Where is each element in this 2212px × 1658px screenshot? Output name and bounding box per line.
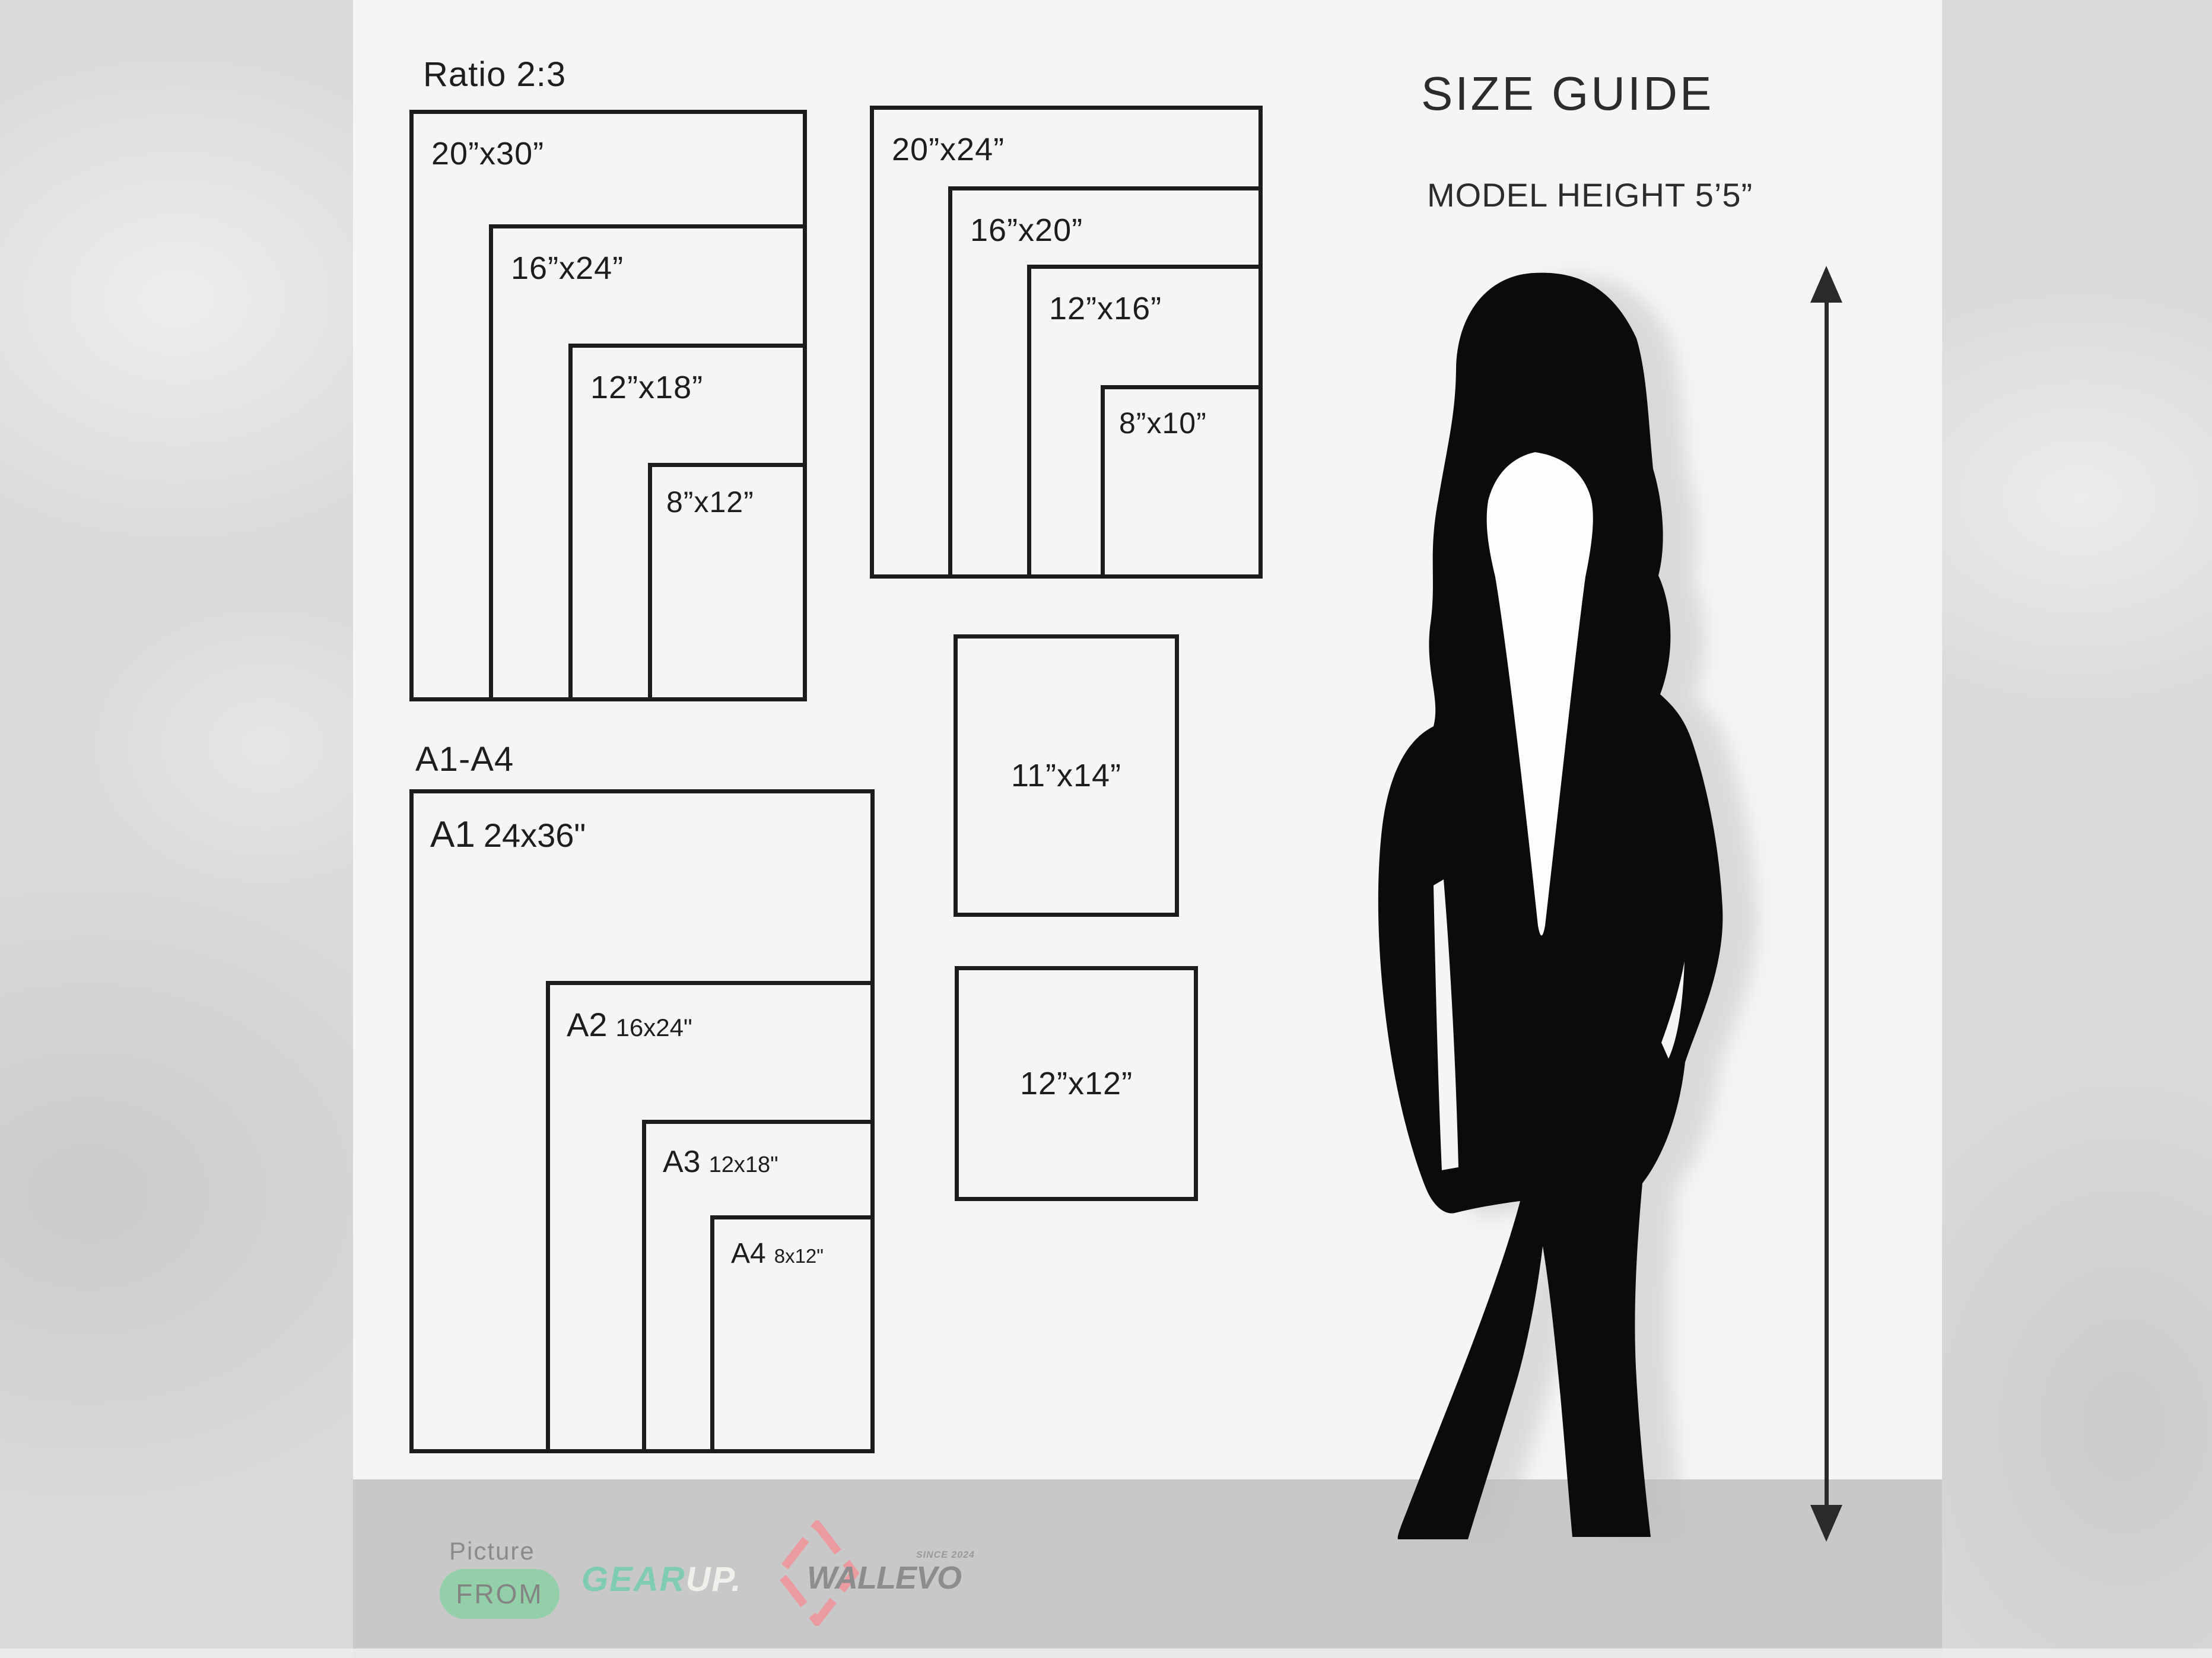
size-label-a1: A1 24x36" bbox=[430, 814, 586, 856]
picture-from-label: Picture bbox=[449, 1537, 535, 1565]
size-label-20x30: 20”x30” bbox=[431, 135, 544, 172]
size-label-a4: A4 8x12" bbox=[731, 1237, 824, 1270]
size-box-8x12: 8”x12” bbox=[648, 463, 807, 701]
model-height-label: MODEL HEIGHT 5’5” bbox=[1427, 176, 1753, 214]
size-label-8x12: 8”x12” bbox=[666, 485, 754, 519]
size-label-12x16: 12”x16” bbox=[1049, 290, 1162, 327]
a1-size: 24x36" bbox=[484, 816, 586, 855]
a4-size: 8x12" bbox=[774, 1245, 824, 1268]
size-label-16x20: 16”x20” bbox=[970, 212, 1083, 249]
woman-silhouette-icon bbox=[1329, 268, 1744, 1538]
size-label-20x24: 20”x24” bbox=[892, 131, 1005, 168]
size-label-11x14: 11”x14” bbox=[1011, 757, 1121, 794]
size-label-a3: A3 12x18" bbox=[663, 1144, 778, 1180]
a3-name: A3 bbox=[663, 1144, 701, 1180]
a2-name: A2 bbox=[567, 1005, 608, 1044]
size-box-8x10: 8”x10” bbox=[1101, 385, 1263, 579]
page-title: SIZE GUIDE bbox=[1421, 66, 1714, 121]
size-label-12x12: 12”x12” bbox=[1020, 1065, 1133, 1102]
size-label-12x18: 12”x18” bbox=[590, 369, 703, 406]
gearup-logo-up: UP. bbox=[686, 1560, 742, 1599]
size-box-12x12: 12”x12” bbox=[955, 966, 1198, 1201]
wallevo-logo: WALLEVO bbox=[807, 1559, 961, 1596]
a-series-title: A1-A4 bbox=[415, 742, 514, 778]
from-badge: FROM bbox=[440, 1569, 560, 1619]
size-label-8x10: 8”x10” bbox=[1119, 406, 1207, 440]
gearup-logo-gear: GEAR bbox=[581, 1560, 686, 1599]
height-arrow-line bbox=[1825, 297, 1829, 1507]
ratio-2-3-title: Ratio 2:3 bbox=[423, 57, 566, 93]
a2-size: 16x24" bbox=[616, 1014, 692, 1042]
a1-name: A1 bbox=[430, 814, 475, 856]
size-label-16x24: 16”x24” bbox=[511, 250, 624, 287]
size-box-11x14: 11”x14” bbox=[954, 634, 1179, 917]
a4-name: A4 bbox=[731, 1237, 766, 1270]
size-label-a2: A2 16x24" bbox=[567, 1005, 692, 1044]
a3-size: 12x18" bbox=[709, 1152, 778, 1178]
gearup-logo: GEARUP. bbox=[581, 1559, 742, 1599]
from-badge-label: FROM bbox=[456, 1578, 543, 1610]
size-box-a4: A4 8x12" bbox=[710, 1215, 875, 1453]
height-arrow-down-icon bbox=[1810, 1505, 1842, 1542]
bottom-light-band bbox=[0, 1649, 2212, 1658]
